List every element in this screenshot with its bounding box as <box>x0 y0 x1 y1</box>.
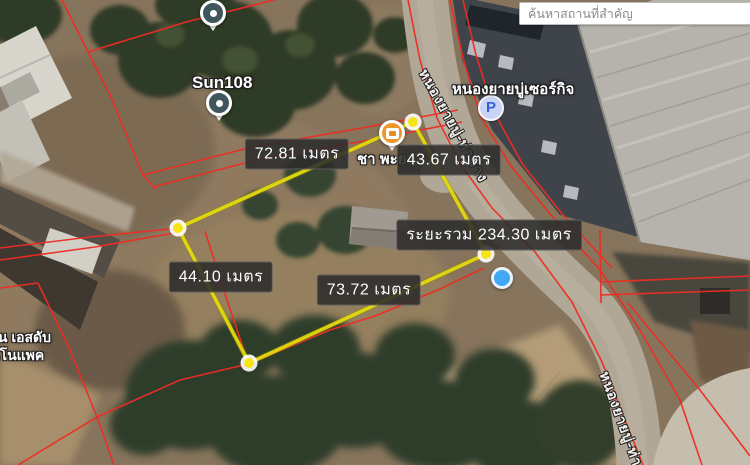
company-line2: นโนแพค <box>0 346 51 364</box>
pin-dot-icon <box>216 100 223 107</box>
map-pin-top[interactable] <box>200 0 226 26</box>
map-pin-sun108[interactable] <box>206 90 232 116</box>
measurement-label-top: 72.81 เมตร <box>245 139 349 170</box>
poi-label-circuit: หนองยายบู่เซอร์กิจ <box>452 77 574 101</box>
company-line1: วน เอสดับ <box>0 328 51 346</box>
cup-icon <box>386 128 399 139</box>
poi-label-company: วน เอสดับ นโนแพค <box>0 328 51 364</box>
pin-dot-icon <box>210 10 217 17</box>
parcel-vertex[interactable] <box>170 220 187 237</box>
location-dot-icon[interactable] <box>491 267 513 289</box>
measurement-overlay <box>0 0 750 465</box>
measurement-label-left: 44.10 เมตร <box>169 262 273 293</box>
measurement-label-bottom: 73.72 เมตร <box>317 275 421 306</box>
cafe-icon <box>379 120 405 146</box>
parcel-vertex[interactable] <box>405 114 422 131</box>
poi-label-sun108: Sun108 <box>192 73 252 93</box>
search-input[interactable] <box>519 2 750 25</box>
parcel-vertex[interactable] <box>241 355 258 372</box>
pin-circle-icon <box>200 0 226 26</box>
cadastral-lines <box>0 0 750 465</box>
pin-circle-icon <box>206 90 232 116</box>
measurement-label-total: ระยะรวม 234.30 เมตร <box>396 220 582 251</box>
measurement-label-right: 43.67 เมตร <box>397 145 501 176</box>
map-canvas[interactable]: P Sun108 หนองยายบู่เซอร์กิจ ชา พะย วน เอ… <box>0 0 750 465</box>
map-pin-cafe[interactable] <box>379 120 405 146</box>
